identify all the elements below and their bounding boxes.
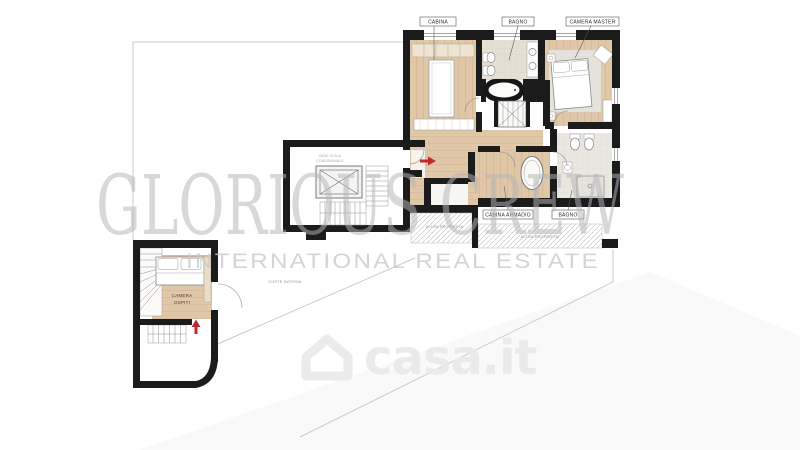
- bidet-icon: [487, 66, 495, 76]
- wardrobe-icon: [412, 44, 474, 57]
- master-bed-icon: [551, 59, 592, 110]
- watermark-portal-text: casa.it: [364, 330, 536, 386]
- room-label-bagno-top: BAGNO: [508, 20, 527, 26]
- watermark-tagline-text: INTERNATIONAL REAL ESTATE: [186, 250, 600, 273]
- toilet-icon: [487, 53, 495, 63]
- stairwell-label-line1: VANO SCALA: [319, 154, 342, 158]
- toilet-icon: [571, 138, 580, 150]
- bathtub-icon: [481, 79, 545, 102]
- bench-icon: [603, 100, 612, 122]
- floor-plan-image: VANO SCALA CONDOMINIALE: [0, 0, 800, 450]
- room-label-camera-ospiti-line2: OSPITI: [174, 300, 190, 305]
- bidet-icon: [585, 138, 594, 150]
- watermark-brand-text: GLORIOUS CREW: [96, 159, 624, 254]
- room-label-cabina: CABINA: [428, 20, 448, 26]
- corte-interna-label: CORTE INTERNA: [268, 280, 302, 284]
- sink-icon: [529, 62, 536, 69]
- sink-icon: [529, 48, 536, 55]
- room-label-camera-ospiti-line1: CAMERA: [172, 293, 194, 298]
- internal-stairs-icon: [494, 100, 530, 127]
- guest-stairs-icon: [148, 325, 186, 343]
- vanity-icon: [527, 42, 538, 77]
- closet-island-icon: [429, 60, 454, 117]
- room-label-camera-master: CAMERA MASTER: [570, 20, 616, 26]
